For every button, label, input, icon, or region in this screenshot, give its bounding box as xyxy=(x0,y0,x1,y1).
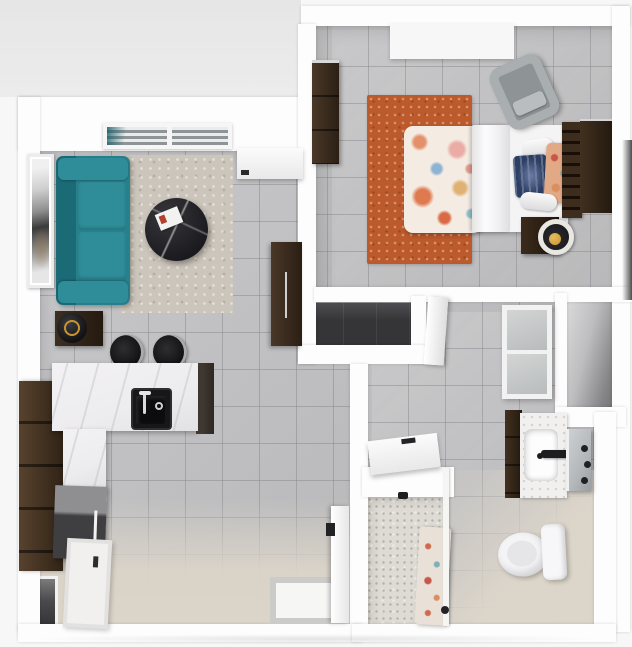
entry-door xyxy=(331,506,349,623)
kitchen-island-counter xyxy=(52,363,198,431)
shower-curtain-rail xyxy=(443,468,449,626)
slat-headboard xyxy=(562,122,582,218)
sofa-armrest xyxy=(58,281,128,303)
wall-art-frame xyxy=(27,154,54,288)
wall-bathroom-east xyxy=(594,412,616,632)
wall-fixture xyxy=(581,477,588,484)
folded-sheet xyxy=(472,125,510,232)
floor-plan-render xyxy=(0,0,632,647)
living-room-window xyxy=(103,123,232,149)
gold-lamp-base xyxy=(549,233,561,245)
armchair-pillow xyxy=(511,90,547,117)
sofa-cushion xyxy=(78,232,126,280)
exterior-shadow-edge xyxy=(622,140,632,300)
wall-bedroom-south xyxy=(314,287,632,302)
toilet-seat xyxy=(506,540,537,568)
door-handle xyxy=(241,170,249,175)
sofa-cushion xyxy=(78,182,126,230)
bedroom-window xyxy=(390,23,514,59)
media-cabinet xyxy=(271,242,302,346)
sink-basin xyxy=(136,396,165,424)
cabinet-handle xyxy=(285,272,287,318)
living-room-door xyxy=(237,148,303,179)
bedroom-dresser xyxy=(312,60,339,164)
cabinet-handle xyxy=(93,556,99,567)
closet-floor xyxy=(311,298,414,348)
door-handle xyxy=(326,523,335,536)
door-glass-pane xyxy=(507,354,547,394)
kitchen-faucet xyxy=(143,392,146,414)
door-hinge xyxy=(398,492,408,499)
faucet-spout xyxy=(139,391,151,395)
bathroom-glass-door xyxy=(502,305,552,399)
door-glass-pane xyxy=(507,310,547,350)
wall-fixture xyxy=(581,445,588,452)
teal-sofa xyxy=(56,156,130,305)
drop-shadow xyxy=(30,634,600,644)
window-glass-reflection xyxy=(107,127,129,145)
tray-lamp xyxy=(538,219,574,255)
sofa-armrest xyxy=(58,158,128,180)
abstract-artwork xyxy=(32,159,49,283)
window-mullion xyxy=(167,125,172,147)
door-handle xyxy=(401,438,416,445)
toilet-tank xyxy=(541,523,568,580)
kitchen-sink xyxy=(131,388,172,430)
island-side-panel xyxy=(196,363,214,434)
end-table xyxy=(55,311,103,346)
wall-niche-west xyxy=(555,293,567,410)
round-coffee-table xyxy=(145,198,208,261)
wall-bathroom-divider xyxy=(350,364,368,632)
magazine xyxy=(155,206,184,231)
faucet-knob xyxy=(155,402,163,410)
magazine-cover-art xyxy=(159,215,168,225)
wall-fixture xyxy=(584,461,591,468)
white-base-cabinet xyxy=(63,538,113,629)
toilet xyxy=(497,523,570,583)
wall-closet-south xyxy=(298,345,428,364)
gold-ring-accent xyxy=(64,320,80,336)
kitchen-counter-return xyxy=(63,429,106,490)
floral-comforter xyxy=(404,126,482,233)
curtain-rail-end xyxy=(441,606,449,614)
patio-slab xyxy=(0,0,301,97)
headboard-console xyxy=(580,119,612,213)
